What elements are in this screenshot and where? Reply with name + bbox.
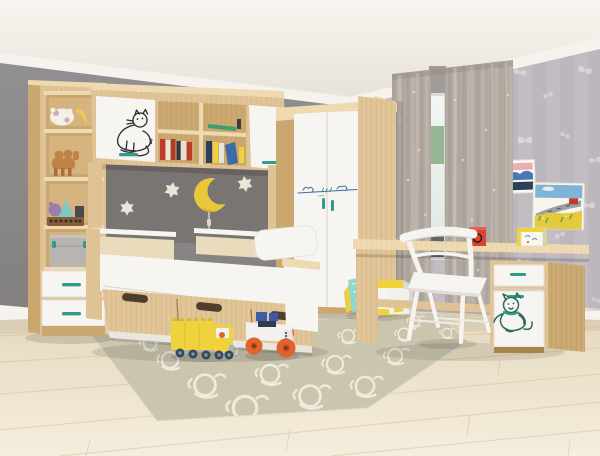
door-handle <box>119 153 138 156</box>
kids-bedroom-photo <box>0 0 600 456</box>
storage-box-gray <box>50 235 88 267</box>
drawer-handle <box>62 312 81 315</box>
driver-figure <box>219 332 225 338</box>
bridge-door-cat <box>96 96 155 162</box>
door-handle <box>262 161 277 164</box>
drawer-handle <box>62 283 81 286</box>
desk-pedestal <box>490 260 585 353</box>
wardrobe-handle <box>331 200 334 211</box>
bridge-shelves <box>158 101 246 166</box>
pillow <box>253 225 318 261</box>
pedestal-drawer-handle <box>510 273 526 276</box>
wardrobe-handle <box>322 198 325 209</box>
lamp-switch <box>207 219 211 226</box>
bed-foot <box>282 258 320 332</box>
bedroom-scene <box>0 0 600 456</box>
wall-art-large <box>533 183 585 230</box>
